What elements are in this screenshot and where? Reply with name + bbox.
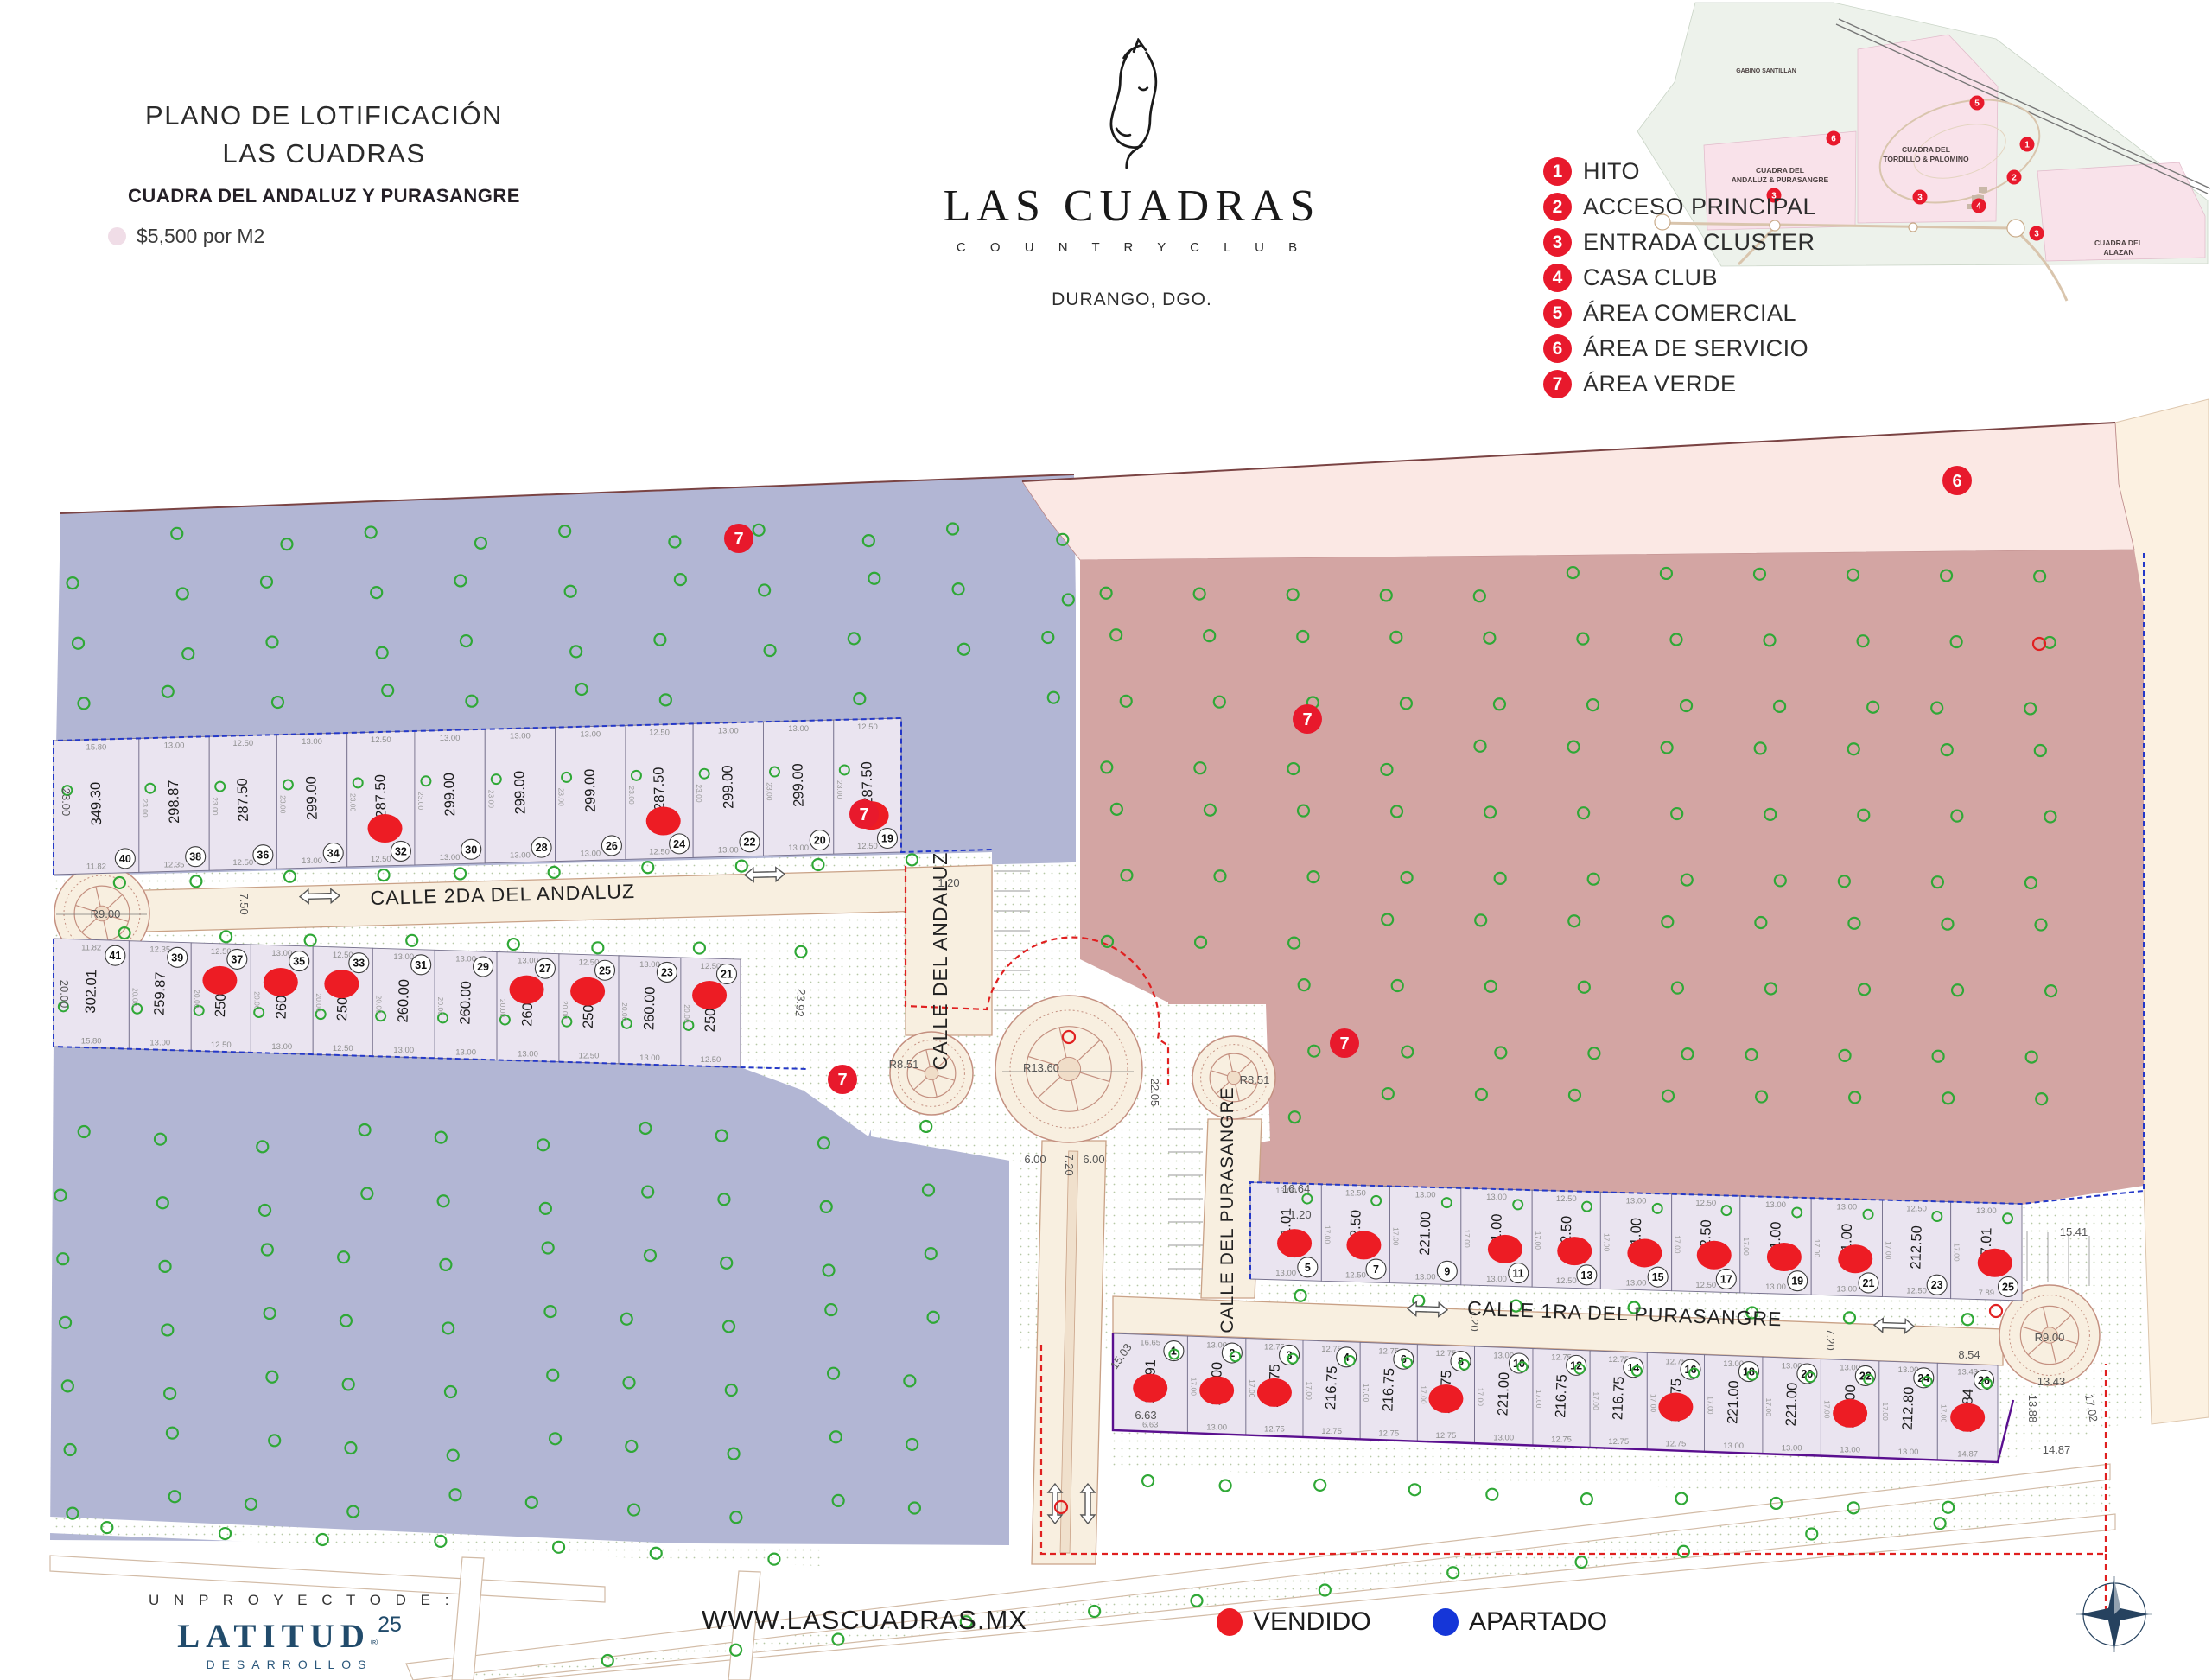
lot-width-top: 13.00	[518, 957, 538, 966]
lot-width-bottom: 12.75	[1436, 1431, 1457, 1441]
lot-andaluz_north-28[interactable]: 299.0013.0013.002823.00	[485, 728, 555, 863]
sold-dot-icon	[646, 807, 681, 836]
svg-text:7: 7	[859, 805, 868, 824]
lot-depth-label: 17.00	[1392, 1227, 1401, 1246]
lot-width-bottom: 12.50	[333, 1044, 353, 1053]
minimap-marker-3: 3	[2030, 226, 2044, 241]
area-marker-7: 7	[724, 524, 753, 553]
map-legend: 1HITO2ACCESO PRINCIPAL3ENTRADA CLUSTER4C…	[1543, 154, 1802, 402]
lot-number: 13	[1580, 1270, 1592, 1282]
lot-area: 260.00	[457, 981, 474, 1025]
lot-number: 25	[599, 964, 611, 977]
lot-purasangre_north-17[interactable]: 212.5012.5012.501717.00	[1672, 1194, 1740, 1293]
horse-logo-icon	[1084, 38, 1179, 169]
sold-dot-icon	[1346, 1231, 1381, 1259]
lot-depth-label: 23.00	[557, 788, 566, 807]
lot-number: 24	[673, 838, 685, 850]
lot-area: 260.00	[641, 986, 658, 1030]
brand-location: DURANGO, DGO.	[881, 290, 1382, 310]
lot-width-bottom: 11.82	[86, 862, 106, 872]
lot-width-top: 13.00	[1626, 1197, 1647, 1206]
sold-dot-icon	[1257, 1378, 1292, 1407]
lot-andaluz_south-33[interactable]: 250.0012.5012.503320.00	[313, 946, 372, 1056]
lot-width-bottom: 13.00	[1782, 1443, 1802, 1453]
lot-purasangre_north-23[interactable]: 212.5012.5012.502317.00	[1883, 1200, 1951, 1298]
lot-depth-label: 20.00	[561, 1001, 569, 1020]
lot-purasangre_north-7[interactable]: 212.5012.5012.50717.00	[1321, 1184, 1389, 1282]
lot-purasangre_north-5[interactable]: 221.0113.0013.005	[1250, 1182, 1321, 1281]
area-marker-7: 7	[1293, 704, 1322, 734]
lot-andaluz_south-29[interactable]: 260.0013.0013.002920.00	[435, 950, 497, 1060]
lot-number: 21	[1863, 1277, 1875, 1289]
lot-depth-label: 23.00	[627, 786, 636, 805]
sold-dot-icon	[1133, 1374, 1167, 1403]
lot-width-top: 12.50	[232, 739, 253, 748]
sold-dot-icon	[1488, 1235, 1522, 1263]
lot-depth-label: 17.00	[1362, 1384, 1370, 1403]
minimap-marker-5: 5	[1970, 96, 1985, 111]
lot-depth-label: 23.00	[278, 795, 287, 814]
lot-purasangre_north-9[interactable]: 221.0013.0013.00917.00	[1390, 1187, 1461, 1285]
minimap-marker-6: 6	[1827, 131, 1841, 146]
lot-width-bottom: 12.35	[164, 860, 185, 869]
lot-width-top: 12.50	[371, 735, 391, 745]
lot-width-bottom: 13.00	[788, 843, 809, 853]
lot-andaluz_south-23[interactable]: 260.0013.0013.002320.00	[619, 956, 681, 1066]
lot-depth-label: 23.00	[349, 793, 358, 812]
area-marker-7: 7	[828, 1065, 857, 1094]
lot-width-bottom: 13.00	[393, 1046, 414, 1055]
lot-width-bottom: 12.50	[1556, 1276, 1577, 1286]
lot-depth-label: 23.00	[486, 790, 495, 809]
minimap-marker-1: 1	[2020, 137, 2035, 152]
svg-text:5: 5	[1974, 99, 1980, 109]
lot-andaluz_north-30[interactable]: 299.0013.0013.003023.00	[415, 729, 485, 865]
legend-label: ACCESO PRINCIPAL	[1583, 194, 1816, 220]
lot-number: 36	[257, 850, 269, 862]
lot-depth-label: 23.00	[211, 797, 219, 816]
legend-item-casa-club: 4CASA CLUB	[1543, 260, 1802, 296]
lot-depth-label: 20.00	[193, 990, 201, 1009]
dimension-label: 14.87	[2043, 1443, 2071, 1456]
lot-number: 26	[606, 840, 618, 852]
dimension-label: R8.51	[1240, 1073, 1270, 1086]
lot-depth-label: 17.00	[1602, 1233, 1611, 1252]
lot-width-bottom: 13.00	[1626, 1279, 1647, 1289]
vendido-dot-icon	[1217, 1608, 1243, 1636]
lot-andaluz_north-34[interactable]: 299.0013.0013.003423.00	[276, 733, 346, 869]
lot-area: 287.50	[235, 778, 251, 822]
lot-purasangre_south-6[interactable]: 216.7512.7512.75617.00	[1360, 1342, 1417, 1441]
lot-width-bottom: 12.50	[1906, 1287, 1927, 1296]
lot-depth-label: 17.00	[1323, 1225, 1332, 1244]
brand-tagline: C O U N T R Y C L U B	[881, 240, 1382, 255]
lot-andaluz_north-19[interactable]: 287.5012.5012.501923.00	[834, 718, 901, 854]
sold-dot-icon	[1627, 1238, 1662, 1267]
lot-purasangre_south-10[interactable]: 221.0013.0013.001017.00	[1475, 1346, 1533, 1445]
lot-depth-label: 23.00	[765, 782, 773, 801]
lot-depth-label: 17.00	[1706, 1396, 1714, 1415]
lot-width-bottom: 12.50	[1345, 1270, 1366, 1280]
svg-text:6: 6	[1831, 135, 1836, 144]
lot-area: 221.00	[1495, 1371, 1512, 1416]
lot-andaluz_north-32[interactable]: 287.5012.5012.503223.00	[347, 731, 415, 867]
apartado-dot-icon	[1433, 1608, 1459, 1636]
brand-block: LAS CUADRAS C O U N T R Y C L U B DURANG…	[881, 38, 1382, 310]
lot-andaluz_north-26[interactable]: 299.0013.0013.002623.00	[556, 725, 626, 861]
legend-num-icon: 1	[1543, 157, 1572, 186]
lot-width-top: 13.00	[1765, 1200, 1786, 1210]
lot-area: 216.75	[1610, 1376, 1627, 1420]
sold-dot-icon	[368, 814, 403, 843]
lot-width-bottom: 13.00	[440, 853, 461, 862]
registered-mark: ®	[371, 1638, 378, 1648]
lot-purasangre_south-20[interactable]: 221.0013.0013.002017.00	[1763, 1357, 1821, 1455]
dimension-label: 6.00	[1083, 1153, 1104, 1166]
compass-icon	[2076, 1576, 2152, 1652]
area-marker-7: 7	[1330, 1028, 1359, 1058]
lot-depth-label: 20.00	[499, 999, 507, 1018]
lot-purasangre_north-13[interactable]: 212.5012.5012.501317.00	[1532, 1190, 1600, 1289]
lot-number: 33	[353, 958, 365, 970]
sold-dot-icon	[1277, 1229, 1312, 1257]
lot-area: 260.00	[395, 979, 411, 1023]
lot-andaluz_south-21[interactable]: 250.0012.5012.502120.00	[681, 958, 741, 1067]
lot-width-bottom: 12.50	[649, 847, 670, 856]
legend-num-icon: 5	[1543, 299, 1572, 328]
lot-area: 216.75	[1323, 1365, 1340, 1410]
lot-width-top: 12.35	[149, 945, 170, 955]
legend-label: HITO	[1583, 158, 1640, 185]
lot-purasangre_south-12[interactable]: 216.7512.7512.751217.00	[1533, 1348, 1590, 1447]
legend-label: ÁREA VERDE	[1583, 371, 1737, 398]
minimap-marker-4: 4	[1972, 199, 1986, 213]
lot-width-bottom: 13.00	[718, 845, 739, 855]
lot-andaluz_south-27[interactable]: 260.0013.0013.002720.00	[497, 951, 559, 1061]
lot-andaluz_south-37[interactable]: 250.0012.5012.503720.00	[191, 943, 251, 1053]
lot-row-andaluz_north: 349.3015.8011.8240298.8713.0012.353823.0…	[54, 718, 901, 875]
lot-number: 31	[415, 959, 427, 971]
lot-width-bottom: 12.75	[1264, 1425, 1285, 1435]
status-vendido: VENDIDO	[1217, 1607, 1371, 1637]
sold-dot-icon	[570, 977, 605, 1006]
website-link[interactable]: WWW.LASCUADRAS.MX	[702, 1605, 1027, 1636]
lot-width-bottom: 13.00	[1836, 1284, 1857, 1294]
lot-depth-label: 17.00	[1189, 1378, 1198, 1397]
lot-andaluz_south-25[interactable]: 250.0012.5012.502520.00	[559, 954, 619, 1064]
lot-width-top: 16.65	[1140, 1339, 1160, 1348]
dimension-label: 1.20	[938, 876, 959, 889]
lot-purasangre_north-15[interactable]: 221.0013.0013.001517.00	[1600, 1192, 1671, 1290]
lot-purasangre_south-22[interactable]: 221.0013.0013.002217.00	[1821, 1359, 1878, 1457]
lot-area: 221.00	[1725, 1380, 1742, 1424]
dimension-label: R9.00	[91, 907, 121, 920]
developer-sub: DESARROLLOS	[177, 1658, 402, 1671]
lot-width-top: 12.50	[1556, 1194, 1577, 1204]
lot-width-top: 13.00	[271, 949, 292, 958]
legend-item--rea-verde: 7ÁREA VERDE	[1543, 366, 1802, 402]
dimension-label: 7.50	[238, 893, 251, 914]
lot-width-bottom: 15.80	[81, 1036, 102, 1046]
legend-item-entrada-cluster: 3ENTRADA CLUSTER	[1543, 225, 1802, 260]
minimap-region-label: ALAZAN	[2104, 248, 2134, 257]
dimension-label: 7.20	[1468, 1309, 1481, 1331]
lot-number: 38	[189, 851, 201, 863]
dimension-label: 7.20	[1063, 1154, 1076, 1175]
lot-depth-label: 17.00	[1649, 1394, 1657, 1413]
lot-purasangre_north-19[interactable]: 221.0013.0013.001917.00	[1740, 1196, 1811, 1295]
lot-number: 19	[881, 833, 893, 845]
lot-andaluz_south-35[interactable]: 260.0013.0013.003520.00	[251, 945, 313, 1054]
legend-num-icon: 2	[1543, 193, 1572, 221]
lot-number: 37	[231, 953, 243, 965]
sold-dot-icon	[1833, 1399, 1867, 1428]
sold-dot-icon	[1950, 1403, 1985, 1432]
lot-depth-label: 20.00	[620, 1002, 629, 1021]
lot-purasangre_south-3[interactable]: 216.7512.7512.75317.00	[1246, 1339, 1303, 1437]
title-block: PLANO DE LOTIFICACIÓN LAS CUADRAS CUADRA…	[60, 97, 588, 248]
lot-andaluz_north-36[interactable]: 287.5012.5012.503623.00	[209, 735, 276, 870]
lot-number: 5	[1305, 1262, 1311, 1274]
lot-width-bottom: 14.87	[1957, 1450, 1978, 1460]
lot-width-bottom: 12.50	[371, 855, 391, 864]
lot-depth-label: 17.00	[1742, 1237, 1751, 1256]
lot-depth-label: 17.00	[1764, 1398, 1773, 1417]
latitud-logo: LATITUD®25 DESARROLLOS	[177, 1613, 402, 1671]
lot-purasangre_south-8[interactable]: 216.7512.7512.75817.00	[1417, 1345, 1474, 1443]
dimension-label: 6.00	[1024, 1153, 1046, 1166]
page-title-line2: LAS CUADRAS	[60, 135, 588, 173]
minimap-region-label: TORDILLO & PALOMINO	[1883, 155, 1969, 163]
area-servicio-strip	[1022, 423, 2134, 560]
street-name-label: CALLE DEL PURASANGRE	[1217, 1086, 1237, 1333]
lot-number: 34	[327, 847, 340, 859]
lot-width-bottom: 13.00	[302, 856, 322, 866]
lot-width-top: 13.00	[393, 952, 414, 962]
dimension-label: 13.43	[2037, 1375, 2066, 1388]
legend-label: ENTRADA CLUSTER	[1583, 229, 1815, 256]
lot-purasangre_south-16[interactable]: 216.7512.7512.751617.00	[1647, 1352, 1704, 1451]
lot-depth-label: 17.00	[1674, 1235, 1682, 1254]
sold-dot-icon	[1838, 1244, 1872, 1273]
sold-dot-icon	[1658, 1393, 1693, 1422]
legend-label: ÁREA COMERCIAL	[1583, 300, 1796, 327]
lot-depth-label: 17.00	[1477, 1388, 1485, 1407]
lot-andaluz_north-38[interactable]: 298.8713.0012.353823.00	[139, 736, 209, 872]
lot-area: 221.00	[1783, 1382, 1801, 1426]
lot-width-top: 13.00	[1836, 1202, 1857, 1212]
lot-purasangre_south-24[interactable]: 212.8013.0013.002417.00	[1879, 1361, 1937, 1460]
lot-width-top: 13.00	[788, 724, 809, 734]
lot-number: 41	[109, 950, 121, 962]
lot-depth-label: 20.00	[130, 988, 139, 1007]
lot-purasangre_north-11[interactable]: 221.0013.0013.001117.00	[1461, 1188, 1532, 1287]
lot-purasangre_north-21[interactable]: 221.0013.0013.002117.00	[1811, 1198, 1882, 1296]
dimension-label: 15.41	[2060, 1225, 2088, 1238]
legend-item-hito: 1HITO	[1543, 154, 1802, 189]
lot-depth-label: 17.00	[1813, 1239, 1821, 1258]
page-subtitle: CUADRA DEL ANDALUZ Y PURASANGRE	[60, 185, 588, 207]
lot-depth-label: 17.00	[1885, 1241, 1893, 1260]
lot-purasangre_south-14[interactable]: 216.7512.7512.751417.00	[1590, 1351, 1647, 1449]
lot-area: 259.87	[152, 971, 168, 1015]
lot-width-top: 15.80	[86, 743, 107, 753]
lot-area: 287.50	[651, 767, 667, 811]
lot-width-bottom: 12.50	[579, 1052, 600, 1061]
dimension-label: R9.00	[2035, 1331, 2065, 1344]
lot-depth-label: 17.00	[1305, 1382, 1313, 1401]
lot-purasangre_south-18[interactable]: 221.0013.0013.001817.00	[1704, 1355, 1762, 1454]
dimension-label: R8.51	[889, 1058, 919, 1071]
dimension-label: 23.92	[793, 989, 809, 1018]
legend-label: CASA CLUB	[1583, 264, 1718, 291]
lot-depth-label: 17.00	[1953, 1243, 1961, 1262]
minimap-marker-3: 3	[1913, 190, 1928, 205]
lot-andaluz_north-22[interactable]: 299.0013.0013.002223.00	[693, 722, 763, 857]
lot-number: 20	[814, 835, 826, 847]
dimension-label: 23.00	[60, 788, 73, 817]
legend-num-icon: 3	[1543, 228, 1572, 257]
lot-width-bottom: 12.50	[211, 1040, 232, 1050]
lot-area: 299.00	[512, 771, 528, 815]
dimension-label: 6.63	[1135, 1409, 1156, 1422]
svg-text:7: 7	[1339, 1034, 1349, 1053]
lot-purasangre_south-2[interactable]: 221.0013.0013.00217.00	[1187, 1336, 1245, 1435]
lot-width-bottom: 12.75	[1665, 1439, 1686, 1448]
lot-number: 39	[171, 951, 183, 964]
lot-area: 298.87	[166, 780, 182, 824]
lot-purasangre_south-26[interactable]: 216.8413.4314.872617.00	[1937, 1363, 1998, 1462]
lot-depth-label: 17.00	[1535, 1390, 1543, 1409]
lot-number: 27	[539, 963, 551, 975]
lot-width-bottom: 12.75	[1321, 1427, 1342, 1436]
price-row: $5,500 por M2	[60, 225, 588, 248]
svg-text:6: 6	[1952, 472, 1961, 491]
lot-number: 9	[1444, 1265, 1450, 1277]
lot-width-bottom: 13.00	[1275, 1269, 1296, 1278]
vendido-label: VENDIDO	[1253, 1607, 1371, 1637]
svg-text:3: 3	[1917, 194, 1923, 203]
lot-number: 30	[465, 843, 477, 856]
lot-depth-label: 23.00	[695, 784, 703, 803]
lot-width-bottom: 12.75	[1378, 1429, 1399, 1438]
svg-text:3: 3	[2034, 230, 2039, 239]
sold-dot-icon	[1199, 1376, 1234, 1404]
lot-width-bottom: 13.00	[1206, 1422, 1227, 1432]
lot-width-bottom: 13.00	[639, 1053, 660, 1063]
lot-andaluz_north-24[interactable]: 287.5012.5012.502423.00	[626, 723, 693, 859]
lot-width-bottom: 13.00	[149, 1039, 170, 1048]
lot-depth-label: 23.00	[416, 792, 425, 811]
sold-dot-icon	[1697, 1241, 1732, 1270]
sold-dot-icon	[1767, 1243, 1802, 1271]
legend-item--rea-comercial: 5ÁREA COMERCIAL	[1543, 296, 1802, 331]
legend-item-acceso-principal: 2ACCESO PRINCIPAL	[1543, 189, 1802, 225]
lot-area: 299.00	[582, 768, 599, 812]
lot-depth-label: 17.00	[1881, 1403, 1890, 1422]
legend-num-icon: 7	[1543, 370, 1572, 398]
lot-width-top: 13.00	[1976, 1206, 1997, 1216]
lot-width-bottom: 13.00	[455, 1047, 476, 1057]
lot-number: 29	[477, 961, 489, 973]
lot-depth-label: 20.00	[436, 997, 445, 1016]
price-dot-icon	[108, 227, 126, 245]
lot-area: 216.75	[1380, 1368, 1397, 1412]
lot-number: 23	[661, 966, 673, 978]
lot-andaluz_south-39[interactable]: 259.8712.3513.003920.00	[129, 941, 191, 1051]
plano-lotificacion-page: 349.3015.8011.8240298.8713.0012.353823.0…	[0, 0, 2212, 1680]
roundabout	[995, 996, 1142, 1142]
lot-width-top: 12.50	[1906, 1205, 1927, 1214]
lot-width-bottom: 13.00	[1415, 1273, 1436, 1282]
lot-width-top: 13.00	[455, 954, 476, 964]
lot-depth-label: 17.00	[1592, 1391, 1600, 1410]
lot-depth-label: 17.00	[1419, 1385, 1427, 1404]
sold-dot-icon	[324, 970, 359, 998]
lot-number: 35	[293, 956, 305, 968]
sold-dot-icon	[1978, 1249, 2012, 1277]
lot-width-bottom: 13.00	[580, 850, 601, 859]
lot-width-bottom: 12.50	[1695, 1281, 1716, 1290]
lot-depth-label: 20.00	[252, 991, 261, 1010]
lot-width-bottom: 13.00	[1840, 1446, 1860, 1455]
lot-width-bottom: 12.50	[701, 1055, 721, 1065]
lot-area: 212.80	[1900, 1386, 1917, 1430]
lot-number: 28	[536, 842, 548, 854]
lot-purasangre_north-25[interactable]: 207.0113.007.892517.00	[1951, 1202, 2022, 1301]
lot-area: 287.50	[372, 774, 389, 818]
lot-width-bottom: 12.75	[1608, 1437, 1629, 1447]
price-label: $5,500 por M2	[137, 225, 264, 248]
minimap-region-label: CUADRA DEL	[2094, 239, 2143, 247]
lot-width-top: 13.00	[639, 960, 660, 970]
lot-width-top: 12.50	[1345, 1188, 1366, 1198]
lot-width-top: 13.00	[164, 741, 185, 750]
lot-area: 299.00	[720, 765, 736, 809]
lot-andaluz_south-31[interactable]: 260.0013.0013.003120.00	[372, 948, 435, 1058]
brand-name: LAS CUADRAS	[881, 181, 1382, 232]
legend-label: ÁREA DE SERVICIO	[1583, 335, 1808, 362]
lot-width-top: 13.00	[302, 737, 322, 747]
lot-area: 221.00	[1417, 1212, 1433, 1256]
lot-width-bottom: 13.00	[1723, 1441, 1744, 1451]
dimension-label: 7.20	[1824, 1328, 1837, 1350]
lot-area: 349.30	[88, 782, 105, 826]
svg-text:7: 7	[1302, 710, 1312, 729]
lot-purasangre_south-4[interactable]: 216.7512.7512.75417.00	[1303, 1340, 1360, 1439]
svg-text:7: 7	[837, 1071, 847, 1090]
lot-width-bottom: 6.63	[1142, 1421, 1159, 1430]
legend-num-icon: 4	[1543, 264, 1572, 292]
lot-number: 32	[395, 845, 407, 857]
dimension-label: R13.60	[1023, 1061, 1059, 1074]
svg-text:2: 2	[2012, 174, 2017, 183]
lot-depth-label: 20.00	[374, 996, 383, 1015]
lot-width-bottom: 13.00	[1765, 1282, 1786, 1292]
lot-width-top: 11.82	[81, 943, 101, 952]
lot-depth-label: 20.00	[315, 993, 323, 1012]
lot-width-top: 13.00	[510, 732, 531, 741]
lot-area: 299.00	[303, 776, 320, 820]
lot-width-top: 13.00	[1415, 1191, 1436, 1200]
lot-width-bottom: 13.00	[271, 1042, 292, 1052]
lot-andaluz_north-20[interactable]: 299.0013.0013.002023.00	[763, 720, 833, 856]
status-apartado: APARTADO	[1433, 1607, 1607, 1637]
lot-area: 212.50	[1908, 1225, 1924, 1270]
sold-dot-icon	[510, 976, 544, 1004]
lot-depth-label: 17.00	[1822, 1400, 1831, 1419]
svg-text:4: 4	[1976, 202, 1981, 212]
